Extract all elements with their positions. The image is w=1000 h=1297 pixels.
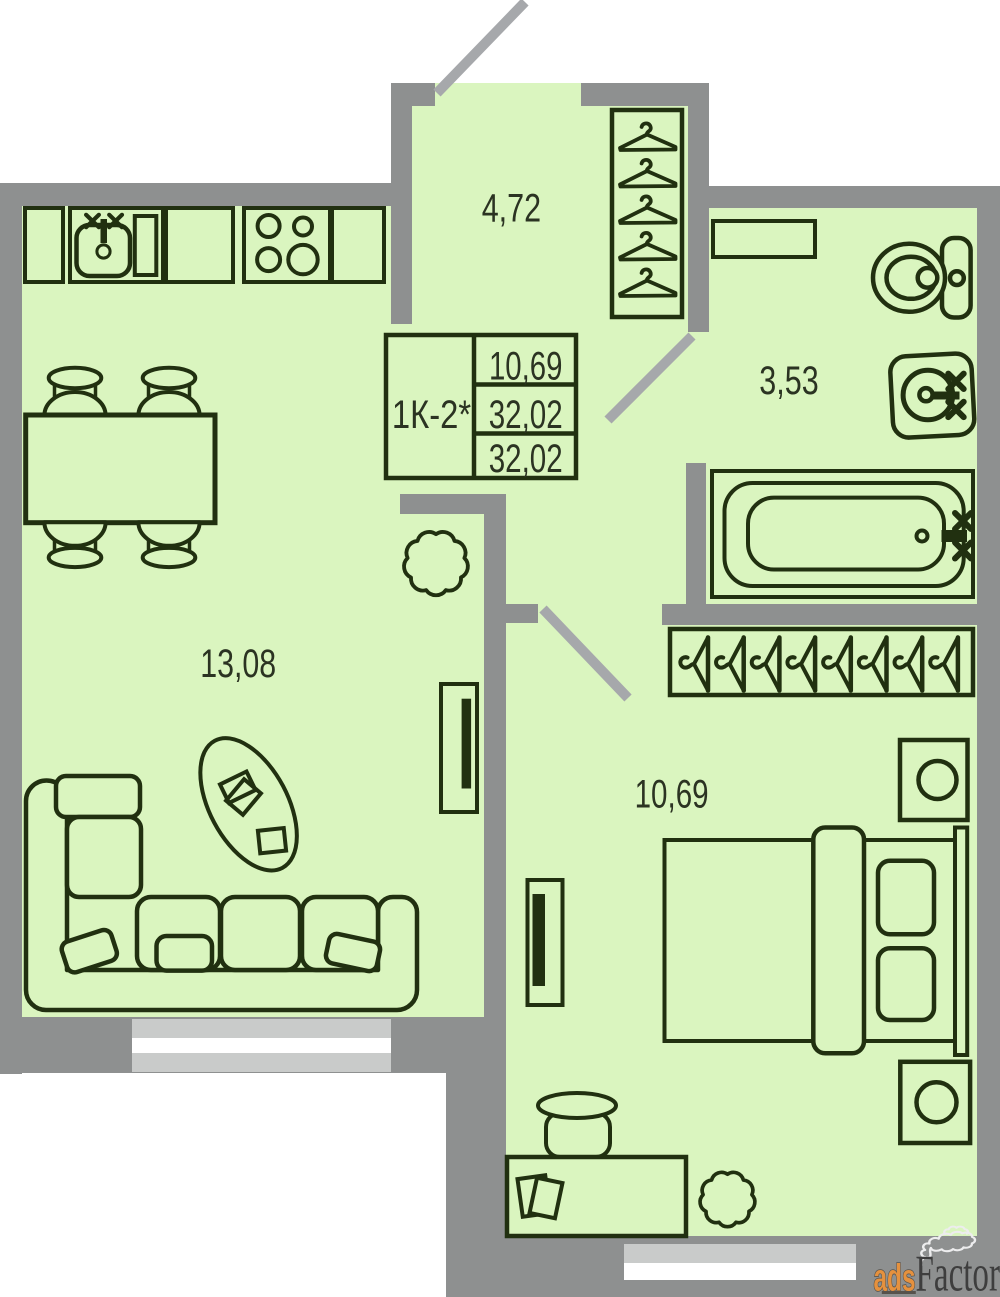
svg-text:32,02: 32,02: [489, 393, 563, 437]
svg-text:10,69: 10,69: [635, 773, 709, 817]
svg-text:4,72: 4,72: [482, 186, 541, 230]
svg-text:10,69: 10,69: [489, 345, 563, 389]
svg-text:3,53: 3,53: [759, 359, 818, 403]
svg-text:32,02: 32,02: [489, 437, 563, 481]
svg-text:13,08: 13,08: [200, 642, 276, 686]
svg-text:Factory: Factory: [916, 1246, 1000, 1297]
svg-text:1К-2*: 1К-2*: [392, 393, 471, 437]
